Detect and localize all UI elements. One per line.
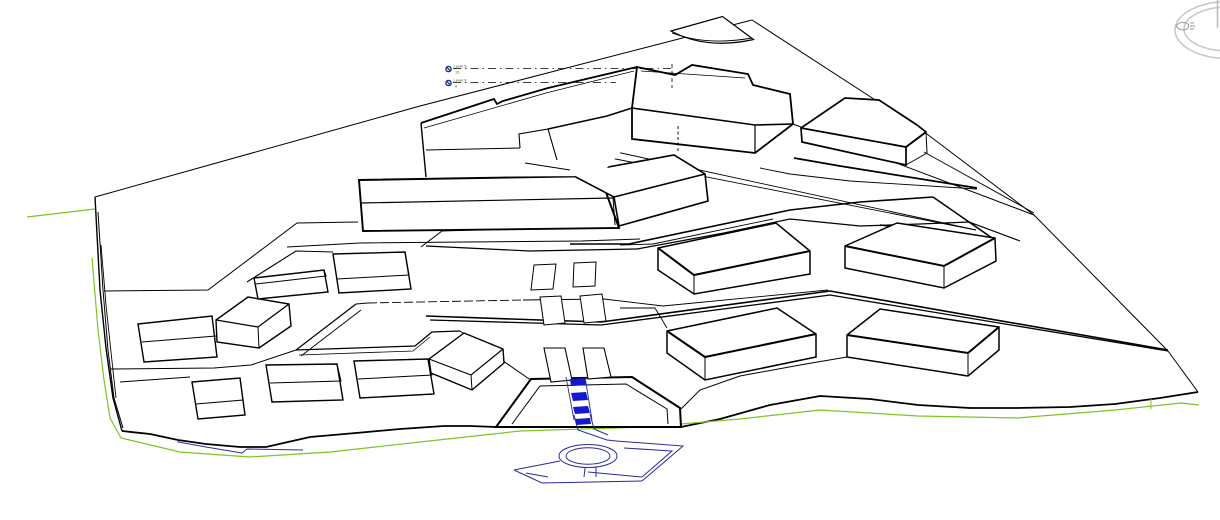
svg-text:16: 16	[455, 70, 460, 75]
svg-text:Level 3: Level 3	[454, 78, 468, 83]
svg-text:Level 5: Level 5	[454, 64, 468, 69]
